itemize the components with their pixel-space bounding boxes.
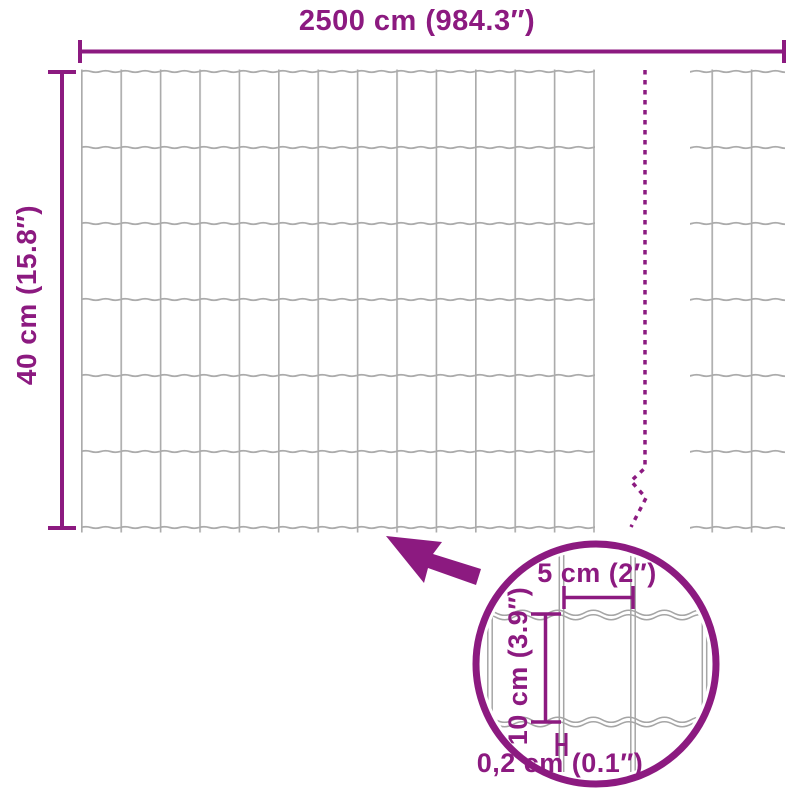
total-width-label: 2500 cm (984.3″)	[217, 5, 617, 37]
mesh-continuation	[690, 70, 785, 533]
product-dimension-diagram: 2500 cm (984.3″) 40 cm (15.8″) 5 cm (2″)…	[0, 0, 800, 800]
roll-height-label: 40 cm (15.8″)	[11, 145, 43, 445]
mesh-cell-width-label: 5 cm (2″)	[507, 559, 687, 587]
detail-height-dimension	[531, 614, 561, 722]
diagram-canvas	[0, 0, 800, 800]
detail-width-dimension	[564, 586, 633, 609]
zoom-arrow-icon	[386, 536, 481, 585]
width-dimension	[80, 40, 784, 63]
mesh-main	[81, 70, 595, 533]
wire-thickness-label: 0,2 cm (0.1″)	[440, 749, 680, 778]
dashed-break-line	[631, 70, 646, 527]
height-dimension	[48, 72, 76, 528]
